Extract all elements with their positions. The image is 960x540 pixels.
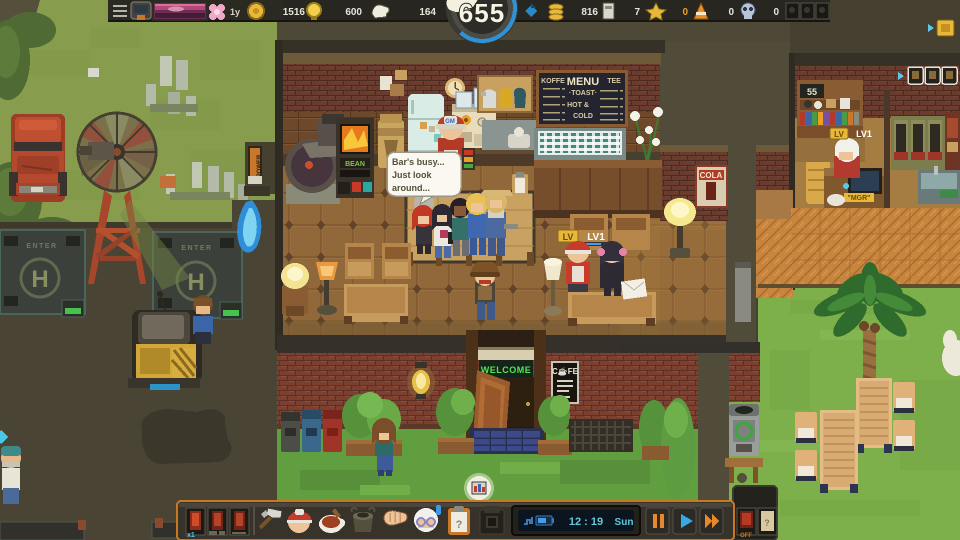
svg-text:POWER: POWER	[257, 154, 263, 177]
svg-text:C☕FE: C☕FE	[552, 366, 579, 376]
svg-text:COLA: COLA	[700, 171, 723, 180]
svg-text:1y: 1y	[230, 7, 240, 17]
svg-text:600: 600	[345, 7, 362, 18]
svg-text:55: 55	[807, 87, 817, 97]
svg-text:LV: LV	[563, 232, 574, 242]
svg-text:H: H	[187, 269, 204, 296]
svg-text:LV1: LV1	[856, 129, 872, 139]
svg-text:Bar's busy...: Bar's busy...	[392, 157, 445, 167]
svg-text:164: 164	[419, 7, 436, 18]
svg-text:816: 816	[581, 7, 598, 18]
svg-text:H: H	[31, 266, 48, 293]
svg-text:Just look: Just look	[392, 170, 433, 180]
svg-text:?: ?	[456, 519, 463, 531]
svg-text:Sun: Sun	[615, 517, 634, 528]
svg-text:ENTER: ENTER	[26, 243, 57, 250]
svg-text:MENU: MENU	[567, 76, 599, 88]
svg-text:WELCOME: WELCOME	[481, 365, 532, 375]
svg-text:7: 7	[634, 7, 640, 18]
svg-text:?: ?	[764, 518, 770, 528]
svg-text:0: 0	[682, 7, 688, 18]
svg-text:LV1: LV1	[587, 232, 605, 243]
svg-text:TEE: TEE	[607, 78, 621, 85]
svg-text:0: 0	[773, 7, 779, 18]
svg-text:OFF: OFF	[740, 533, 752, 539]
svg-text:x1: x1	[187, 532, 195, 539]
svg-text:·TOAST·: ·TOAST·	[569, 90, 597, 97]
svg-text:ENTER: ENTER	[181, 245, 212, 252]
svg-text:BEAN: BEAN	[345, 161, 365, 168]
svg-text:"MGR": "MGR"	[848, 195, 871, 202]
svg-text:around...: around...	[392, 183, 430, 193]
svg-text:0: 0	[728, 7, 734, 18]
svg-text:655: 655	[459, 0, 505, 28]
svg-text:1516: 1516	[283, 7, 306, 18]
svg-text:COLD: COLD	[573, 113, 593, 120]
svg-text:KOFFE: KOFFE	[541, 78, 565, 85]
svg-text:12 : 19: 12 : 19	[569, 516, 603, 528]
svg-text:LV: LV	[834, 130, 844, 139]
svg-text:GM: GM	[445, 119, 455, 125]
svg-text:HOT &: HOT &	[567, 102, 589, 109]
